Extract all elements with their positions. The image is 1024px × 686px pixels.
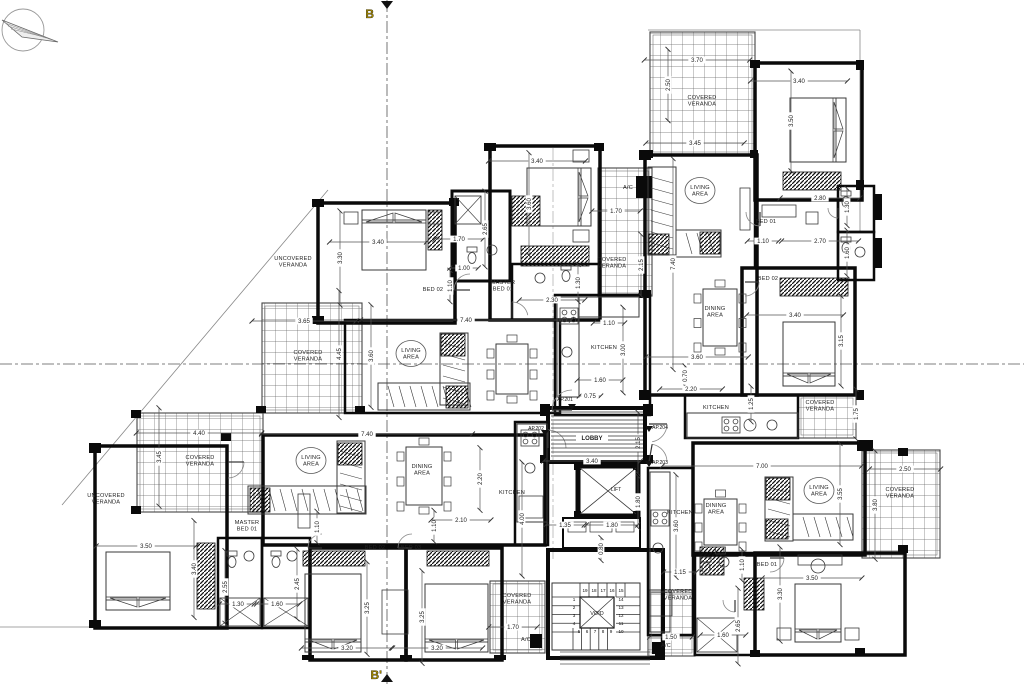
- column: [89, 443, 101, 453]
- toilet: [841, 191, 851, 196]
- room-label-text: COVERED: [293, 350, 322, 356]
- room-label: BED 02: [758, 276, 778, 282]
- room-label: KITCHEN: [703, 405, 729, 411]
- dimension-value: 2.45: [295, 578, 301, 590]
- room-label-text: VERANDA: [92, 500, 121, 506]
- column: [355, 406, 365, 413]
- room-label-text: KITCHEN: [667, 510, 693, 516]
- sofa-cushion: [766, 519, 788, 539]
- section-marker-top: B: [365, 1, 393, 21]
- column: [530, 634, 542, 648]
- room-label-text: BED 02: [365, 545, 385, 551]
- sink: [562, 347, 572, 357]
- dimension-value: 3.30: [778, 588, 784, 600]
- room-label-text: A/C: [623, 185, 633, 191]
- wardrobe: [427, 551, 489, 566]
- burner: [571, 310, 576, 315]
- dimension: 1.10: [431, 508, 439, 544]
- column: [636, 176, 652, 198]
- burner: [733, 426, 738, 431]
- north-arrow-icon: [2, 9, 58, 51]
- dimension-value: 1.70: [610, 209, 622, 215]
- sofa-cushion: [446, 386, 468, 408]
- chair: [530, 391, 537, 400]
- stair-step-number: 16: [609, 588, 615, 593]
- stair-step-number: 10: [618, 629, 624, 634]
- toilet: [228, 557, 236, 568]
- stair-step-number: 5: [578, 629, 581, 634]
- dimension-value: 3.00: [621, 344, 627, 356]
- toilet: [562, 271, 570, 282]
- burner: [724, 419, 729, 424]
- apartment-door-label: AP.203: [652, 460, 668, 466]
- stair-step-number: 18: [591, 588, 597, 593]
- toilet: [271, 551, 281, 556]
- room-label: A/C: [661, 643, 671, 649]
- wardrobe: [744, 578, 764, 610]
- wardrobe: [197, 543, 215, 609]
- apartment-door-label: AP.204: [652, 425, 668, 431]
- stair-step-number: 15: [618, 588, 624, 593]
- column: [643, 404, 653, 416]
- toilet: [467, 247, 477, 252]
- chair: [507, 335, 517, 342]
- dimension: 4.00: [519, 460, 527, 579]
- sofa-cushion: [250, 488, 270, 512]
- dimension: 0.70: [682, 364, 690, 389]
- chair: [694, 319, 701, 328]
- room-label: LIVINGAREA: [296, 448, 326, 474]
- dimension: 3.40: [327, 239, 429, 247]
- wall: [685, 395, 798, 438]
- wardrobe: [783, 172, 841, 190]
- dimension-value: 3.40: [793, 79, 805, 85]
- burner: [532, 439, 537, 444]
- dimension-value: 3.25: [365, 602, 371, 614]
- dimension-value: 1.10: [432, 520, 438, 532]
- dimension-value: 4.00: [520, 513, 526, 525]
- sofa-cushion: [700, 232, 720, 254]
- veranda-grids: [137, 32, 940, 656]
- column: [645, 150, 653, 158]
- stair-step-number: 14: [618, 597, 624, 602]
- stair-step-number: 2: [573, 605, 576, 610]
- sofa-cushion: [766, 478, 790, 500]
- room-label-text: COVERED: [185, 455, 214, 461]
- room-label: LIVINGAREA: [804, 478, 834, 504]
- chair: [716, 490, 726, 497]
- dimension-value: 3.60: [691, 355, 703, 361]
- stair-step-number: 17: [600, 588, 606, 593]
- dimension-value: 3.60: [527, 198, 533, 210]
- dimension: 3.20: [389, 645, 485, 653]
- door-swing: [548, 430, 566, 448]
- burner: [653, 519, 658, 524]
- wardrobe: [521, 246, 589, 266]
- column: [540, 404, 550, 416]
- room-label: COVEREDVERANDA: [663, 589, 692, 602]
- dimension-value: 3.60: [369, 350, 375, 362]
- door-swing: [723, 600, 735, 612]
- column: [256, 406, 266, 413]
- chair: [695, 523, 702, 532]
- chair: [694, 294, 701, 303]
- dimension-value: 3.20: [431, 646, 443, 652]
- dimension: 3.50: [94, 543, 199, 551]
- column: [898, 448, 908, 456]
- pillow: [834, 102, 843, 129]
- stair-step-number: 6: [586, 629, 589, 634]
- chair: [444, 502, 451, 511]
- chair: [419, 438, 429, 445]
- dimension-value: 1.10: [603, 321, 615, 327]
- column: [855, 648, 865, 656]
- dimension-value: 3.15: [839, 335, 845, 347]
- room-label: UNCOVEREDVERANDA: [87, 493, 125, 506]
- burner: [662, 519, 667, 524]
- pillow: [579, 172, 588, 196]
- dimension: 3.40: [744, 312, 846, 320]
- sofa-cushion: [649, 234, 669, 254]
- dimension-value: 1.10: [448, 280, 454, 292]
- chair: [487, 349, 494, 358]
- chair: [419, 507, 429, 514]
- room-label-text: VERANDA: [688, 102, 717, 108]
- column: [874, 194, 882, 220]
- dimension-value: 0.70: [683, 370, 689, 382]
- column: [449, 198, 459, 206]
- dimension-value: 1.60: [717, 633, 729, 639]
- chair: [397, 502, 404, 511]
- room-label: BED 01: [757, 562, 777, 568]
- dimension: 3.55: [837, 441, 845, 547]
- nightstand: [777, 628, 791, 640]
- dimension-value: 2.15: [639, 259, 645, 271]
- room-label: COVEREDVERANDA: [687, 95, 716, 108]
- room-label-text: BED 03: [401, 545, 421, 551]
- sofa-cushion: [441, 334, 465, 356]
- chair: [739, 523, 746, 532]
- dimension: 1.60: [252, 601, 303, 609]
- column: [131, 506, 141, 514]
- chair: [397, 452, 404, 461]
- dimension: 2.10: [429, 517, 494, 525]
- dimension-value: 3.70: [691, 58, 703, 64]
- wardrobe: [780, 278, 848, 296]
- room-label: COVEREDVERANDA: [293, 350, 322, 363]
- room-label-text: VERANDA: [294, 357, 323, 363]
- bed: [795, 584, 841, 642]
- room-label-text: COVERED: [805, 400, 834, 406]
- column: [594, 143, 604, 151]
- room-label: A/C: [623, 185, 633, 191]
- room-label-text: COVERED: [597, 257, 626, 263]
- stair-step-number: 3: [573, 613, 576, 618]
- dimension-value: 0.80: [599, 543, 605, 555]
- lobby-label: LOBBY: [582, 436, 603, 442]
- column: [494, 655, 506, 660]
- column: [750, 60, 760, 68]
- room-label-text: A/C: [661, 643, 671, 649]
- chair: [507, 396, 517, 403]
- burner: [733, 419, 738, 424]
- room-label-text: AREA: [811, 492, 827, 498]
- door-swing: [512, 302, 528, 315]
- column: [302, 655, 314, 660]
- apartment-door-label: AP.201: [557, 397, 573, 403]
- room-label: DININGAREA: [706, 503, 727, 516]
- room-label: DININGAREA: [412, 464, 433, 477]
- room-label-text: UNCOVERED: [87, 493, 125, 499]
- dimension-value: 2.55: [223, 581, 229, 593]
- chair: [444, 452, 451, 461]
- dimension: 1.35: [543, 522, 586, 530]
- room-label-text: KITCHEN: [591, 345, 617, 351]
- wardrobe: [428, 210, 442, 250]
- chair: [694, 343, 701, 352]
- dimension-value: 7.00: [756, 464, 768, 470]
- column: [131, 410, 141, 418]
- room-label-text: VERANDA: [598, 264, 627, 270]
- dimension: 2.65: [482, 189, 490, 270]
- room-label: COVEREDVERANDA: [805, 400, 834, 413]
- dimension-value: 1.30: [845, 201, 851, 213]
- dimension: 3.15: [838, 294, 846, 389]
- dimension-value: 4.40: [193, 431, 205, 437]
- wardrobe: [700, 547, 724, 575]
- room-label: MASTERBED 01: [491, 280, 516, 293]
- column: [857, 440, 873, 451]
- column: [874, 238, 882, 268]
- dimension: 0.75: [577, 393, 603, 401]
- stair-step-number: 19: [582, 588, 588, 593]
- tv-unit: [740, 188, 750, 230]
- dimension-value: 2.70: [814, 239, 826, 245]
- dimension-value: 2.30: [546, 298, 558, 304]
- section-marker-bottom: B': [370, 668, 393, 682]
- dimension-value: 3.40: [372, 240, 384, 246]
- column: [856, 60, 864, 70]
- toilet: [272, 557, 280, 568]
- dimension-value: 1.25: [749, 398, 755, 410]
- room-label-text: VERANDA: [886, 494, 915, 500]
- chair: [715, 348, 725, 355]
- dimension: 0.80: [598, 535, 606, 563]
- sink: [855, 247, 865, 257]
- dimension-value: 2.50: [899, 467, 911, 473]
- room-label-text: BED 01: [756, 219, 776, 225]
- room-label-text: KITCHEN: [499, 490, 525, 496]
- dimension-value: 3.50: [140, 544, 152, 550]
- room-label: BED 01: [756, 219, 776, 225]
- column: [574, 511, 581, 518]
- room-label-text: LIVING: [809, 485, 829, 491]
- nightstand: [845, 628, 859, 640]
- column: [633, 463, 640, 470]
- dimension-value: 3.45: [689, 141, 701, 147]
- dimension: 1.30: [217, 601, 259, 609]
- dimension: 3.60: [643, 354, 751, 362]
- wall: [838, 186, 874, 232]
- column: [221, 433, 231, 441]
- sofa: [793, 514, 853, 540]
- room-label-text: LIVING: [301, 455, 321, 461]
- dimension-value: 7.40: [671, 258, 677, 270]
- dimension-value: 3.60: [674, 520, 680, 532]
- dimension: 3.30: [777, 544, 785, 643]
- stair-step-number: 11: [619, 621, 624, 626]
- room-label-text: AREA: [303, 462, 319, 468]
- column: [639, 390, 651, 400]
- pillow: [395, 213, 422, 222]
- chair: [530, 349, 537, 358]
- nightstand: [573, 230, 589, 242]
- room-label-text: A/C: [521, 637, 531, 643]
- dimension-value: 1.60: [845, 247, 851, 259]
- sofa-cushion: [338, 443, 362, 465]
- stair-step-number: 8: [602, 629, 605, 634]
- pillow: [110, 598, 137, 607]
- dimension-value: 2.15: [636, 437, 642, 449]
- dresser: [382, 590, 408, 634]
- dimension-value: 1.15: [674, 570, 686, 576]
- furniture: [106, 98, 865, 652]
- bed: [106, 552, 170, 610]
- dimension: 3.50: [760, 575, 865, 583]
- column: [89, 620, 101, 628]
- dimension: 3.20: [299, 645, 395, 653]
- floor-plan-page: 12345678910111213141516171819 3.403.301.…: [0, 0, 1024, 686]
- dimension-value: 1.35: [559, 523, 571, 529]
- pillow: [834, 131, 843, 158]
- sink: [287, 551, 297, 561]
- room-label-text: VERANDA: [503, 600, 532, 606]
- dimension: 2.20: [477, 445, 485, 513]
- dimension: 3.25: [364, 559, 372, 657]
- dimension-value: 2.20: [685, 387, 697, 393]
- room-label-text: AREA: [403, 355, 419, 361]
- wall: [755, 200, 838, 268]
- dimension-value: 3.50: [789, 115, 795, 127]
- dimensions: 3.403.301.702.651.001.103.403.601.302.30…: [94, 47, 944, 666]
- burner: [523, 439, 528, 444]
- toilet: [468, 253, 476, 264]
- room-label-text: AREA: [692, 192, 708, 198]
- dimension-value: 1.10: [315, 521, 321, 533]
- section-arrow-top-icon: [381, 1, 393, 9]
- dimension-value: 3.20: [341, 646, 353, 652]
- tv-unit: [298, 494, 310, 528]
- kitchen-counter: [579, 297, 639, 317]
- wall: [548, 550, 663, 658]
- dimension-value: 3.30: [338, 252, 344, 264]
- stair-step-number: 7: [594, 629, 597, 634]
- column: [856, 180, 864, 190]
- chair: [530, 370, 537, 379]
- dimension: 1.25: [748, 384, 756, 425]
- dimension: 1.60: [575, 377, 626, 385]
- room-label-text: BED 01: [237, 527, 257, 533]
- column: [750, 650, 760, 657]
- dimension-value: 3.25: [420, 611, 426, 623]
- burner: [653, 512, 658, 517]
- stair-step-number: 1: [573, 597, 576, 602]
- dimension-value: 7.40: [361, 432, 373, 438]
- sink: [535, 273, 545, 283]
- column: [312, 316, 324, 324]
- lift-label: LIFT: [611, 487, 621, 493]
- dimension-value: 3.45: [157, 451, 163, 463]
- dimension: 1.30: [575, 262, 583, 304]
- sink: [767, 420, 777, 430]
- room-label-text: MASTER: [491, 280, 516, 286]
- room-label: MASTERBED 01: [235, 520, 260, 533]
- room-label-text: BED 01: [493, 287, 513, 293]
- dimension: 3.60: [526, 150, 534, 258]
- dimension-value: 2.65: [736, 620, 742, 632]
- room-label-text: MASTER: [235, 520, 260, 526]
- dimension: 3.30: [337, 208, 345, 307]
- dimension-value: 1.75: [854, 408, 860, 420]
- column: [312, 199, 324, 207]
- room-label: KITCHEN: [591, 345, 617, 351]
- column: [856, 390, 864, 400]
- dresser: [806, 212, 818, 224]
- burner: [562, 310, 567, 315]
- room-label: KITCHEN: [667, 510, 693, 516]
- mirror: [811, 559, 825, 573]
- column: [750, 150, 758, 158]
- sink: [244, 551, 254, 561]
- room-label-text: AREA: [708, 510, 724, 516]
- room-label: COVEREDVERANDA: [185, 455, 214, 468]
- chair: [487, 391, 494, 400]
- dimension-value: 1.10: [740, 559, 746, 571]
- room-label-text: VERANDA: [279, 263, 308, 269]
- room-label-text: AREA: [707, 313, 723, 319]
- dimension: 3.60: [368, 302, 376, 410]
- room-label-text: VERANDA: [186, 462, 215, 468]
- pillow: [819, 630, 837, 639]
- dimension-value: 1.60: [271, 602, 283, 608]
- dimension-value: 2.20: [478, 473, 484, 485]
- pillow: [579, 198, 588, 222]
- chair: [397, 477, 404, 486]
- room-label-text: VERANDA: [664, 596, 693, 602]
- floor-plan-drawing: 12345678910111213141516171819 3.403.301.…: [0, 0, 1024, 686]
- dimension-value: 3.40: [586, 459, 598, 465]
- chair: [715, 280, 725, 287]
- room-label: UNCOVEREDVERANDA: [274, 256, 312, 269]
- section-label-top: B: [365, 7, 374, 21]
- room-label-text: LIVING: [690, 185, 710, 191]
- pillow: [366, 213, 393, 222]
- room-label: COVEREDVERANDA: [502, 593, 531, 606]
- room-label: LIVINGAREA: [396, 341, 426, 367]
- dimension-value: 1.50: [665, 635, 677, 641]
- dimension: 1.30: [844, 186, 852, 228]
- dimension: 2.20: [657, 386, 725, 394]
- dimension-value: 3.80: [873, 499, 879, 511]
- room-label: LIVINGAREA: [685, 178, 715, 204]
- room-label: KITCHEN: [499, 490, 525, 496]
- bed: [790, 98, 846, 162]
- dimension: 3.60: [673, 472, 681, 580]
- chair: [487, 370, 494, 379]
- room-label-text: KITCHEN: [703, 405, 729, 411]
- dimension: 2.45: [294, 547, 302, 622]
- dimension-value: 3.40: [192, 563, 198, 575]
